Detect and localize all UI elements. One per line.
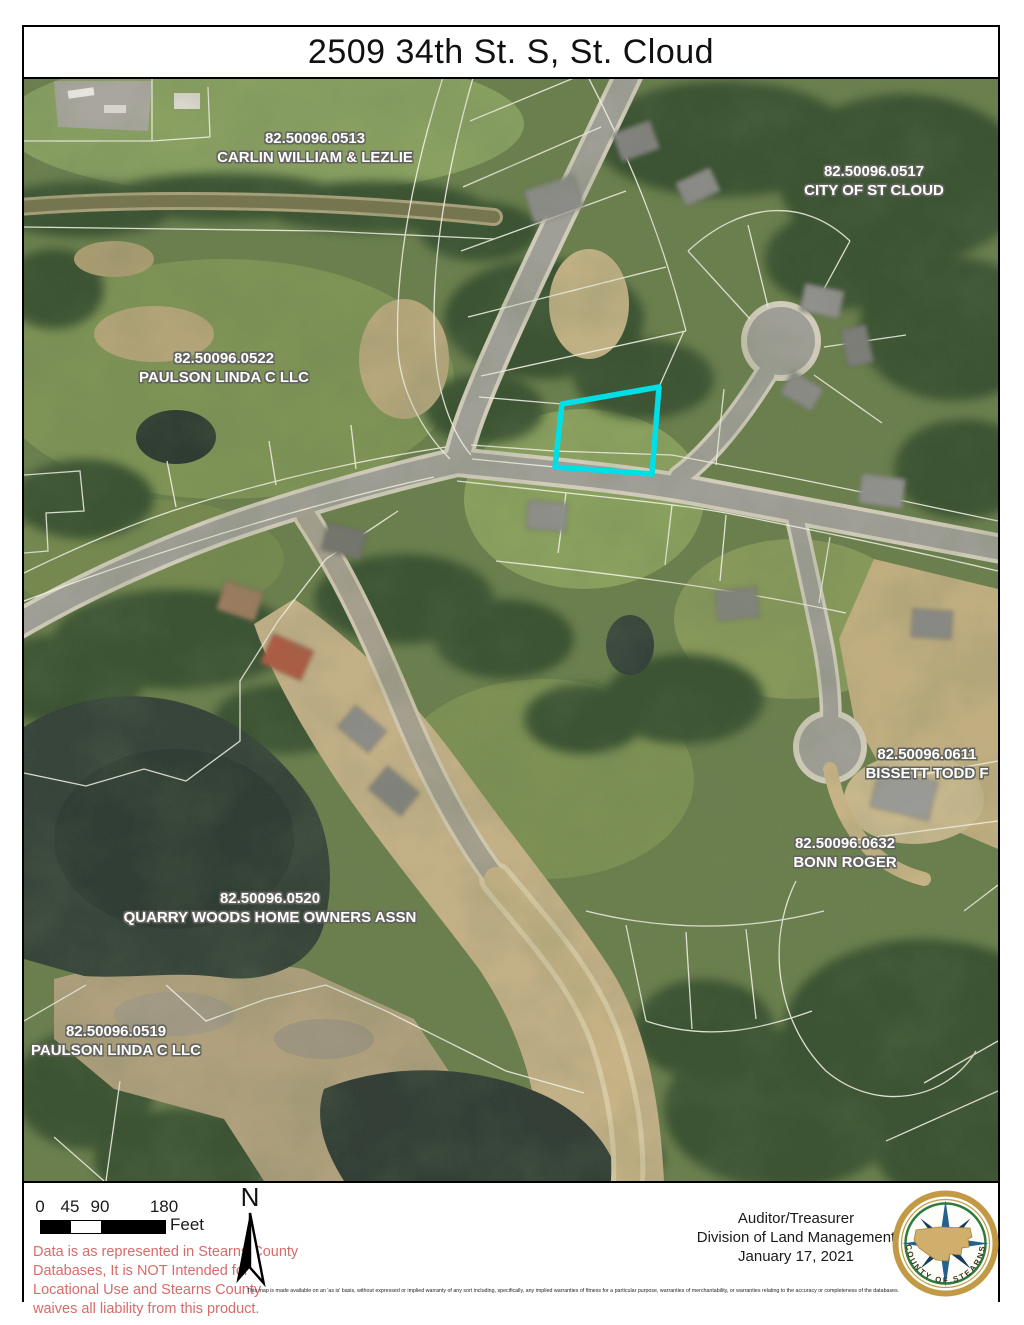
scale-tick-label: 90: [91, 1197, 110, 1217]
county-seal-icon: COUNTY OF STEARNS: [892, 1190, 999, 1297]
north-arrow: N: [229, 1184, 271, 1287]
scale-bar-graphic: [40, 1220, 166, 1234]
scale-tick-label: 45: [61, 1197, 80, 1217]
map-footer: 0 45 90 180 Feet Data is as represented …: [24, 1181, 998, 1302]
disclaimer-line: waives all liability from this product.: [33, 1300, 298, 1319]
grain-overlay: [24, 79, 998, 1181]
fine-print-disclaimer: This map is made available on an 'as is'…: [247, 1288, 807, 1294]
aerial-map: 82.50096.0513CARLIN WILLIAM & LEZLIE82.5…: [24, 79, 998, 1181]
north-label: N: [229, 1184, 271, 1210]
map-title: 2509 34th St. S, St. Cloud: [308, 33, 714, 72]
title-bar: 2509 34th St. S, St. Cloud: [24, 27, 998, 79]
north-arrow-icon: [230, 1211, 270, 1287]
map-sheet: 2509 34th St. S, St. Cloud: [22, 25, 1000, 1302]
scale-tick-label: 0: [35, 1197, 44, 1217]
scale-unit-label: Feet: [170, 1215, 204, 1235]
aerial-imagery: [24, 79, 998, 1181]
scale-tick-label: 180: [150, 1197, 178, 1217]
